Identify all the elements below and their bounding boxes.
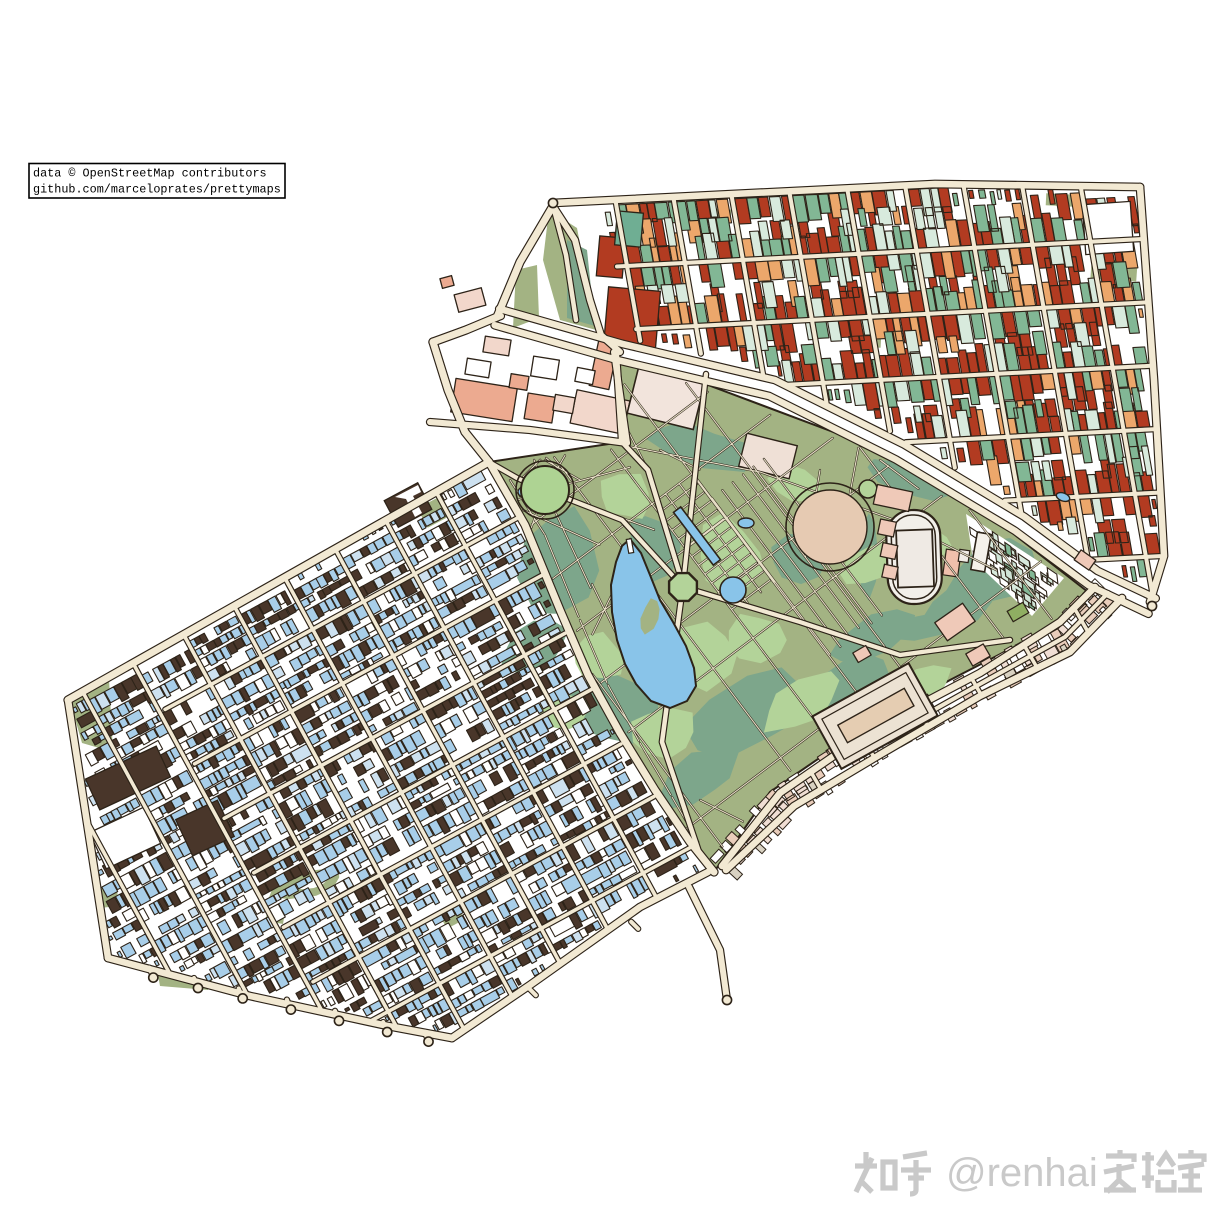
svg-text:@renhai: @renhai xyxy=(946,1151,1098,1195)
svg-text:data © OpenStreetMap contribut: data © OpenStreetMap contributors xyxy=(33,167,267,181)
svg-text:github.com/marceloprates/prett: github.com/marceloprates/prettymaps xyxy=(33,183,281,197)
